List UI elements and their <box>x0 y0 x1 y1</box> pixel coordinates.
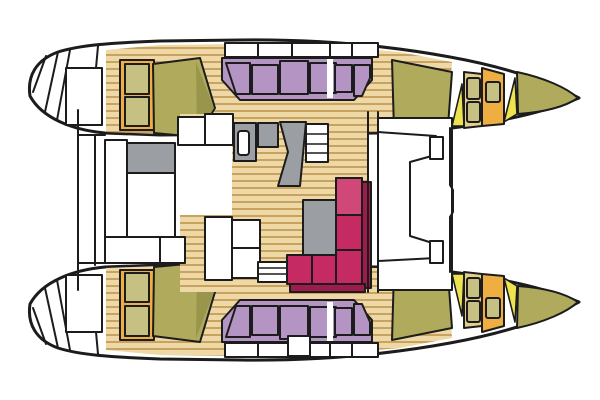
cushion <box>280 61 308 94</box>
swim-platform-top <box>66 68 102 125</box>
cushion <box>335 308 352 335</box>
locker-hatch <box>467 78 480 99</box>
catamaran-plan-svg <box>0 0 600 400</box>
sink <box>238 131 249 155</box>
locker-hatch <box>486 82 500 102</box>
cushion <box>252 306 278 335</box>
sofa-cushion-top <box>336 178 362 215</box>
cockpit-bench-left <box>105 140 127 237</box>
boat-floor-plan <box>0 0 600 400</box>
locker-hatch <box>467 102 480 122</box>
cushion <box>252 65 278 94</box>
cushion-gap <box>327 59 333 98</box>
roof-strip-top <box>225 43 378 57</box>
settee-top <box>222 58 372 100</box>
steps-to-top-hull <box>306 124 328 162</box>
swim-platform-bottom <box>66 275 102 332</box>
companionway-bottom <box>288 336 310 356</box>
cushion <box>280 306 308 339</box>
pillow <box>125 306 149 336</box>
side-deck-top <box>225 43 378 57</box>
locker-hatch <box>486 298 500 318</box>
pillow <box>125 273 149 302</box>
cushion <box>335 65 352 92</box>
locker-hatch <box>467 278 480 298</box>
cockpit-seat <box>127 173 175 237</box>
sofa-front-edge <box>290 284 365 292</box>
beam-fitting <box>430 137 443 159</box>
dinette-table <box>303 200 336 255</box>
beam-fitting <box>430 241 443 263</box>
pillow <box>125 97 149 126</box>
galley-stove <box>258 123 278 147</box>
cockpit-table <box>127 143 175 173</box>
saloon-cabinet <box>205 217 232 280</box>
galley-cabinet <box>178 117 205 145</box>
saloon-cabinet <box>232 220 260 248</box>
saloon-cabinet <box>232 248 260 278</box>
galley-cabinet <box>205 114 233 145</box>
cockpit-bench-seat <box>160 237 185 263</box>
steps-to-bottom-hull <box>258 262 290 282</box>
cushion-gap <box>327 302 333 341</box>
forward-structure <box>368 112 453 292</box>
sofa-back-edge <box>362 182 371 288</box>
locker-hatch <box>467 301 480 322</box>
pillow <box>125 64 149 94</box>
